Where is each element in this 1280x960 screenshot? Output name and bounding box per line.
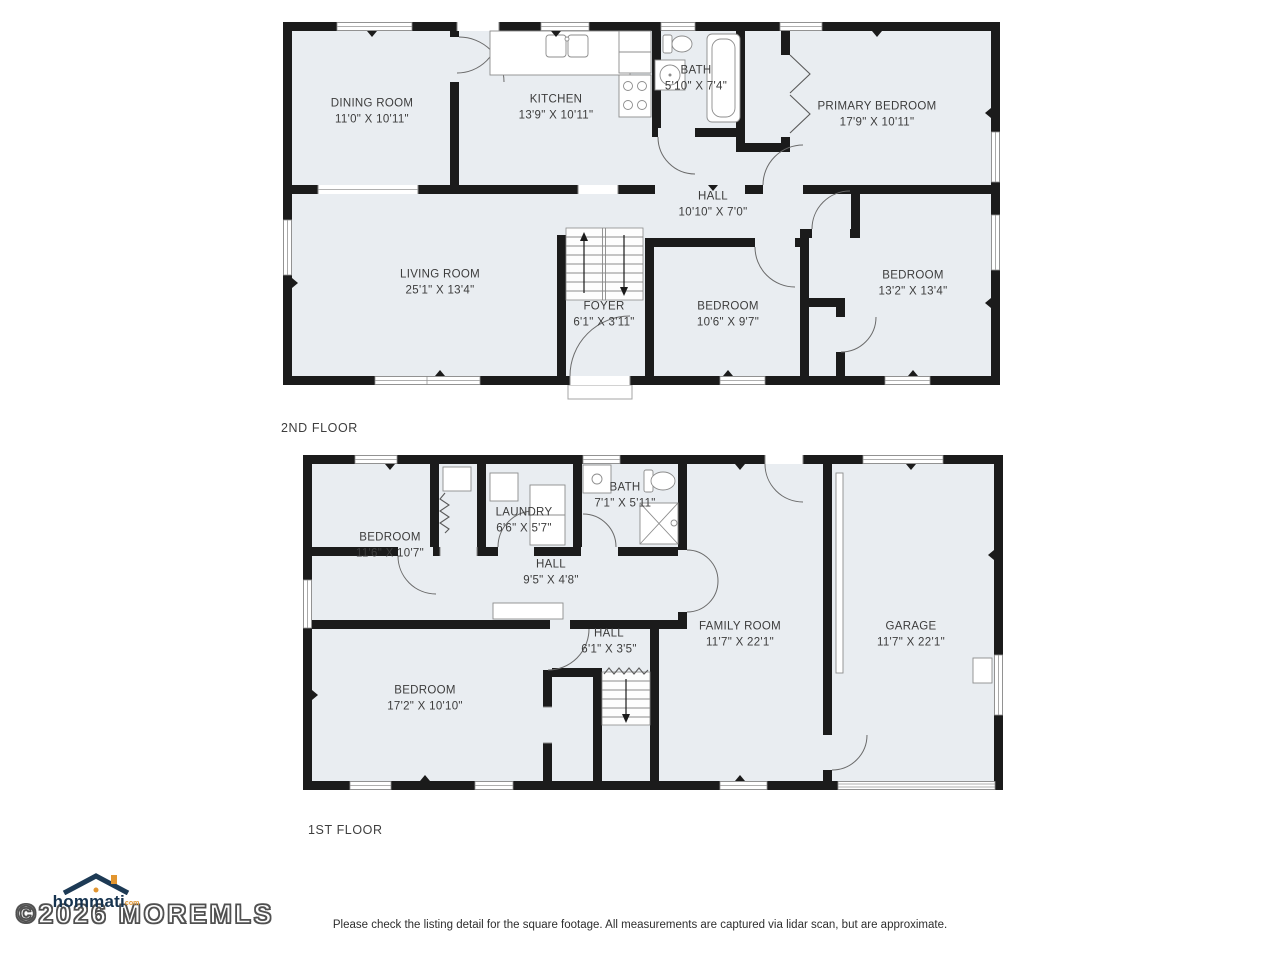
hommati-logo: hommaticom bbox=[40, 872, 152, 911]
room-label-primary-bedroom: PRIMARY BEDROOM 17'9" X 10'11" bbox=[817, 100, 936, 131]
room-label-bath-2nd: BATH 5'10" X 7'4" bbox=[665, 64, 727, 95]
room-dims: 11'6" X 10'7" bbox=[356, 546, 424, 562]
room-name: LIVING ROOM bbox=[400, 268, 480, 284]
room-label-hall-upper: HALL 9'5" X 4'8" bbox=[523, 558, 579, 589]
room-dims: 10'6" X 9'7" bbox=[697, 315, 759, 331]
room-dims: 10'10" X 7'0" bbox=[679, 205, 748, 221]
first-floor-caption: 1ST FLOOR bbox=[308, 823, 383, 837]
room-label-hall-lower: HALL 6'1" X 3'5" bbox=[581, 627, 637, 658]
room-label-bedroom-132: BEDROOM 13'2" X 13'4" bbox=[879, 269, 948, 300]
room-label-bath-1st: BATH 7'1" X 5'11" bbox=[594, 481, 655, 512]
room-dims: 11'7" X 22'1" bbox=[699, 635, 781, 651]
room-label-hall-2nd: HALL 10'10" X 7'0" bbox=[679, 190, 748, 221]
second-floor-drawing bbox=[283, 22, 1000, 403]
garage-door bbox=[838, 782, 995, 790]
room-name: BEDROOM bbox=[879, 269, 948, 285]
room-dims: 17'2" X 10'10" bbox=[387, 699, 463, 715]
room-label-dining-room: DINING ROOM 11'0" X 10'11" bbox=[331, 97, 414, 128]
first-floor-plan: BEDROOM 11'6" X 10'7" LAUNDRY 6'6" X 5'7… bbox=[303, 455, 1003, 790]
second-floor-caption: 2ND FLOOR bbox=[281, 421, 358, 435]
room-label-bedroom-106: BEDROOM 10'6" X 9'7" bbox=[697, 300, 759, 331]
staircase bbox=[566, 228, 643, 300]
room-label-laundry: LAUNDRY 6'6" X 5'7" bbox=[496, 506, 553, 537]
room-name: DINING ROOM bbox=[331, 97, 414, 113]
room-dims: 11'0" X 10'11" bbox=[331, 112, 414, 128]
room-name: BATH bbox=[594, 481, 655, 497]
room-dims: 6'1" X 3'5" bbox=[581, 642, 637, 658]
room-label-family-room: FAMILY ROOM 11'7" X 22'1" bbox=[699, 620, 781, 651]
room-dims: 11'7" X 22'1" bbox=[877, 635, 945, 651]
room-dims: 7'1" X 5'11" bbox=[594, 496, 655, 512]
brand-suffix: com bbox=[125, 900, 139, 907]
room-dims: 9'5" X 4'8" bbox=[523, 573, 579, 589]
second-floor-plan: DINING ROOM 11'0" X 10'11" KITCHEN 13'9"… bbox=[283, 22, 1000, 403]
room-label-foyer: FOYER 6'1" X 3'11" bbox=[573, 300, 634, 331]
room-dims: 6'6" X 5'7" bbox=[496, 521, 553, 537]
room-name: KITCHEN bbox=[519, 93, 594, 109]
room-name: FOYER bbox=[573, 300, 634, 316]
staircase bbox=[602, 668, 650, 725]
brand-name: hommati bbox=[53, 892, 125, 911]
room-name: FAMILY ROOM bbox=[699, 620, 781, 636]
floor-plan-page: DINING ROOM 11'0" X 10'11" KITCHEN 13'9"… bbox=[0, 0, 1280, 960]
room-name: BEDROOM bbox=[697, 300, 759, 316]
room-dims: 25'1" X 13'4" bbox=[400, 283, 480, 299]
room-name: BEDROOM bbox=[387, 684, 463, 700]
room-name: GARAGE bbox=[877, 620, 945, 636]
room-name: HALL bbox=[679, 190, 748, 206]
room-name: LAUNDRY bbox=[496, 506, 553, 522]
room-label-garage: GARAGE 11'7" X 22'1" bbox=[877, 620, 945, 651]
room-label-kitchen: KITCHEN 13'9" X 10'11" bbox=[519, 93, 594, 124]
disclaimer-text: Please check the listing detail for the … bbox=[0, 919, 1280, 931]
room-name: BATH bbox=[665, 64, 727, 80]
room-label-bedroom-116: BEDROOM 11'6" X 10'7" bbox=[356, 531, 424, 562]
porch-step bbox=[568, 385, 632, 399]
room-label-bedroom-172: BEDROOM 17'2" X 10'10" bbox=[387, 684, 463, 715]
room-dims: 13'2" X 13'4" bbox=[879, 284, 948, 300]
room-dims: 13'9" X 10'11" bbox=[519, 108, 594, 124]
room-dims: 17'9" X 10'11" bbox=[817, 115, 936, 131]
room-name: BEDROOM bbox=[356, 531, 424, 547]
room-label-living-room: LIVING ROOM 25'1" X 13'4" bbox=[400, 268, 480, 299]
room-dims: 5'10" X 7'4" bbox=[665, 79, 727, 95]
room-name: HALL bbox=[523, 558, 579, 574]
room-dims: 6'1" X 3'11" bbox=[573, 315, 634, 331]
logo-text: hommaticom bbox=[40, 895, 152, 911]
room-name: HALL bbox=[581, 627, 637, 643]
chimney-icon bbox=[111, 875, 117, 884]
room-name: PRIMARY BEDROOM bbox=[817, 100, 936, 116]
